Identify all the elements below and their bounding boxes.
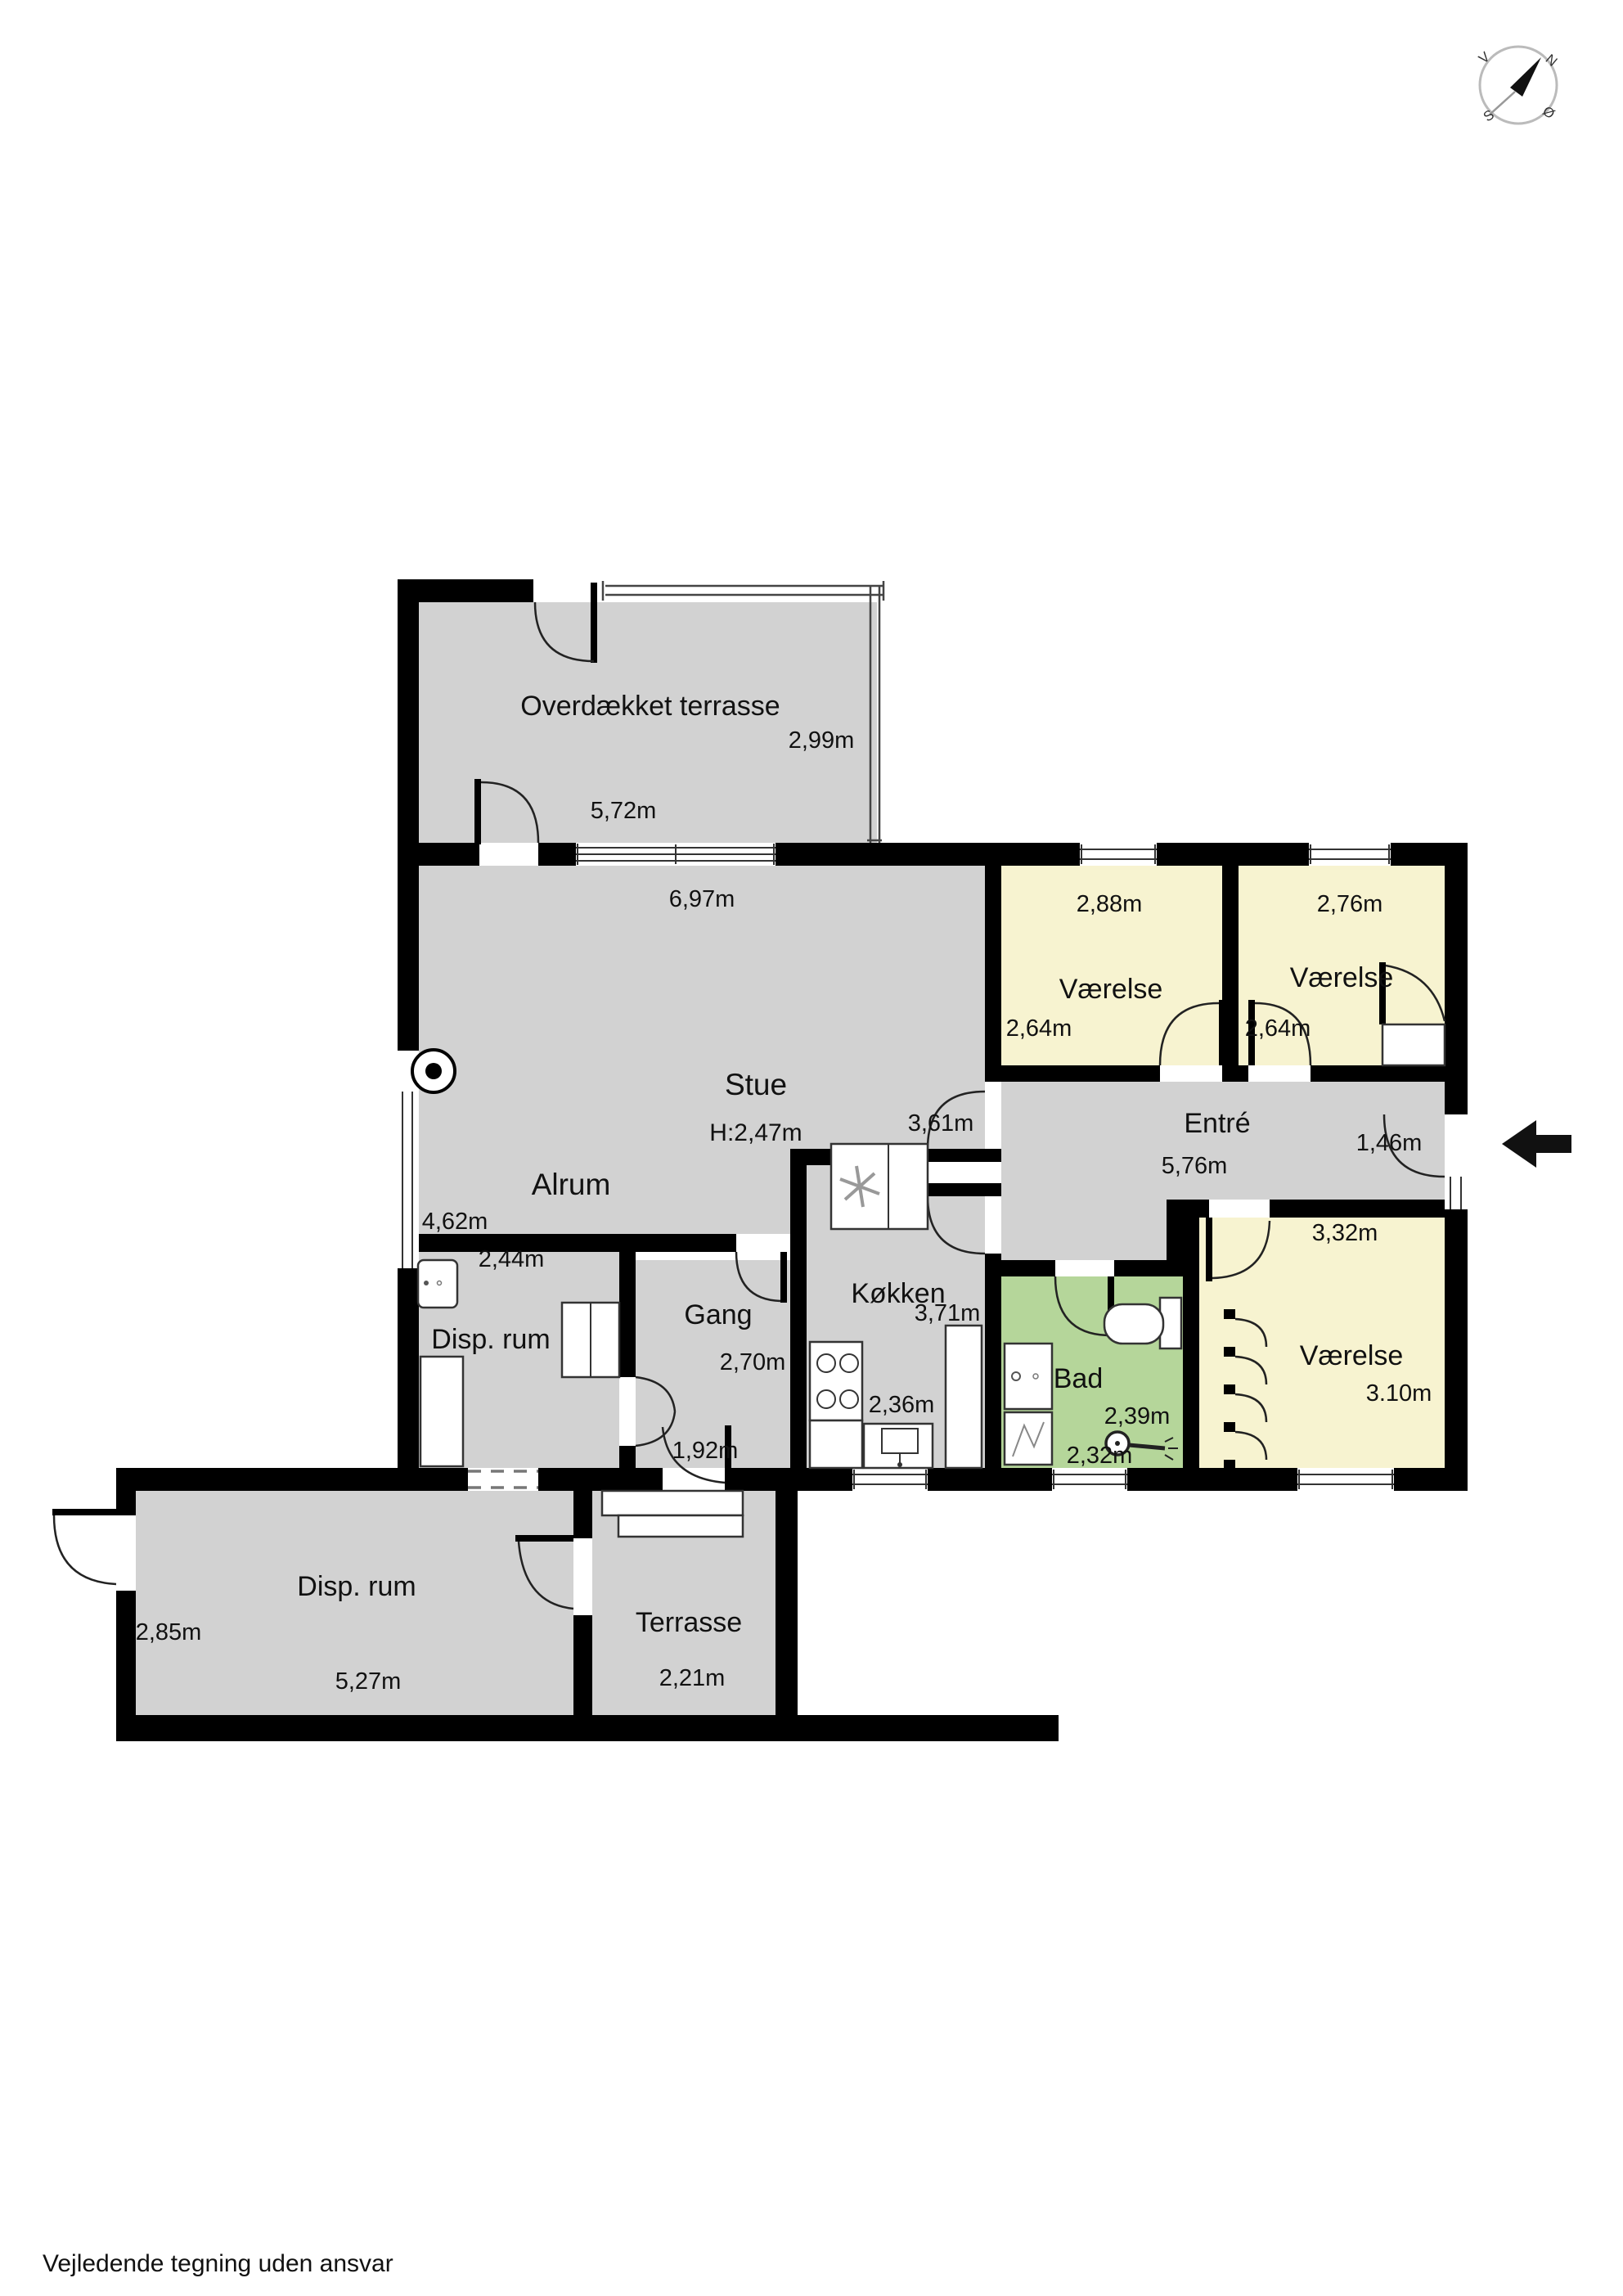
bedroom-3-depth: 3.10m <box>1366 1380 1432 1407</box>
disp-rum-lower-width: 5,27m <box>335 1668 402 1695</box>
terrasse-width: 2,21m <box>659 1665 726 1691</box>
entre-width: 5,76m <box>1162 1153 1228 1179</box>
gang-label: Gang <box>684 1299 752 1330</box>
exterior-door-arc <box>54 1515 116 1584</box>
compass-east-label: Ø <box>1540 103 1558 122</box>
bedroom-2-depth: 2,64m <box>1245 1015 1311 1042</box>
stue-depth: 3,61m <box>908 1110 974 1137</box>
terrasse-label: Terrasse <box>636 1607 742 1638</box>
bedroom-1-window <box>1080 843 1157 866</box>
covered-terrace-label: Overdækket terrasse <box>520 691 780 722</box>
bad-window <box>1052 1468 1127 1491</box>
cooktop-icon <box>810 1342 862 1420</box>
gang-passage-width: 1,92m <box>672 1438 739 1464</box>
koekken-width: 2,36m <box>869 1392 935 1418</box>
bedroom-1-label: Værelse <box>1059 974 1163 1005</box>
disp-rum-upper-label: Disp. rum <box>431 1324 550 1355</box>
compass-needle <box>1510 57 1541 97</box>
floor-plan-page: N V S Ø Overdækket terrasse 2,99m 5,72m … <box>0 0 1623 2296</box>
gang-width: 2,70m <box>720 1349 786 1375</box>
bedroom-1-depth: 2,64m <box>1006 1015 1072 1042</box>
bedroom-3-width: 3,32m <box>1312 1220 1378 1246</box>
wood-stove-icon <box>412 1050 455 1092</box>
bedroom-2-width: 2,76m <box>1317 891 1383 917</box>
bad-width: 2,32m <box>1067 1443 1133 1469</box>
bedroom-2-label: Værelse <box>1290 962 1394 993</box>
stue-width: 6,97m <box>669 886 735 912</box>
entre-depth: 1,46m <box>1356 1130 1423 1156</box>
bedroom-3-label: Værelse <box>1300 1340 1404 1371</box>
terrasse-step-1 <box>602 1491 743 1515</box>
koekken-depth: 3,71m <box>915 1300 981 1326</box>
bedroom-3-window <box>1297 1468 1394 1491</box>
bedroom-2-window <box>1309 843 1391 866</box>
toilet-icon <box>1104 1298 1181 1348</box>
koekken-window <box>852 1468 928 1491</box>
washing-machine-icon <box>418 1260 457 1308</box>
alrum-depth: 4,62m <box>422 1209 488 1235</box>
compass-icon: N V S Ø <box>1476 47 1560 125</box>
covered-terrace-width: 5,72m <box>591 798 657 824</box>
cabinet-icon <box>420 1357 463 1466</box>
compass-north-label: N <box>1543 52 1561 70</box>
bad-label: Bad <box>1054 1363 1104 1394</box>
bedroom-2-closet-icon <box>1382 1024 1445 1065</box>
stue-ceiling-height: H:2,47m <box>709 1119 802 1146</box>
disclaimer-text: Vejledende tegning uden ansvar <box>43 2250 393 2277</box>
bad-depth: 2,39m <box>1104 1403 1171 1429</box>
stue-top-window <box>576 843 776 866</box>
bath-sink-icon <box>1005 1344 1052 1409</box>
terrasse-step-2 <box>618 1515 743 1537</box>
disp-rum-upper-width: 2,44m <box>479 1246 545 1272</box>
alrum-label: Alrum <box>532 1168 611 1201</box>
dashed-opening <box>468 1468 538 1491</box>
alrum-left-window <box>398 1092 419 1268</box>
fireplace-unit-icon <box>831 1144 928 1229</box>
shower-tray-icon <box>1005 1412 1052 1465</box>
entre-right-window <box>1445 1177 1468 1209</box>
stue-label: Stue <box>725 1068 787 1101</box>
disp-rum-lower-depth: 2,85m <box>136 1619 202 1645</box>
entrance-arrow-icon <box>1502 1120 1571 1168</box>
kitchen-tall-counter-icon <box>946 1326 982 1468</box>
passage-gap <box>928 1162 1001 1183</box>
kitchen-sink-icon <box>864 1424 933 1468</box>
disp-rum-lower-label: Disp. rum <box>297 1571 416 1602</box>
bedroom-1-width: 2,88m <box>1077 891 1143 917</box>
kitchen-counter-icon <box>810 1420 862 1468</box>
covered-terrace-depth: 2,99m <box>789 727 855 754</box>
wardrobe-upper-icon <box>562 1303 619 1377</box>
floor-plan-drawing: N V S Ø Overdækket terrasse 2,99m 5,72m … <box>0 0 1623 2296</box>
entre-label: Entré <box>1184 1108 1250 1139</box>
